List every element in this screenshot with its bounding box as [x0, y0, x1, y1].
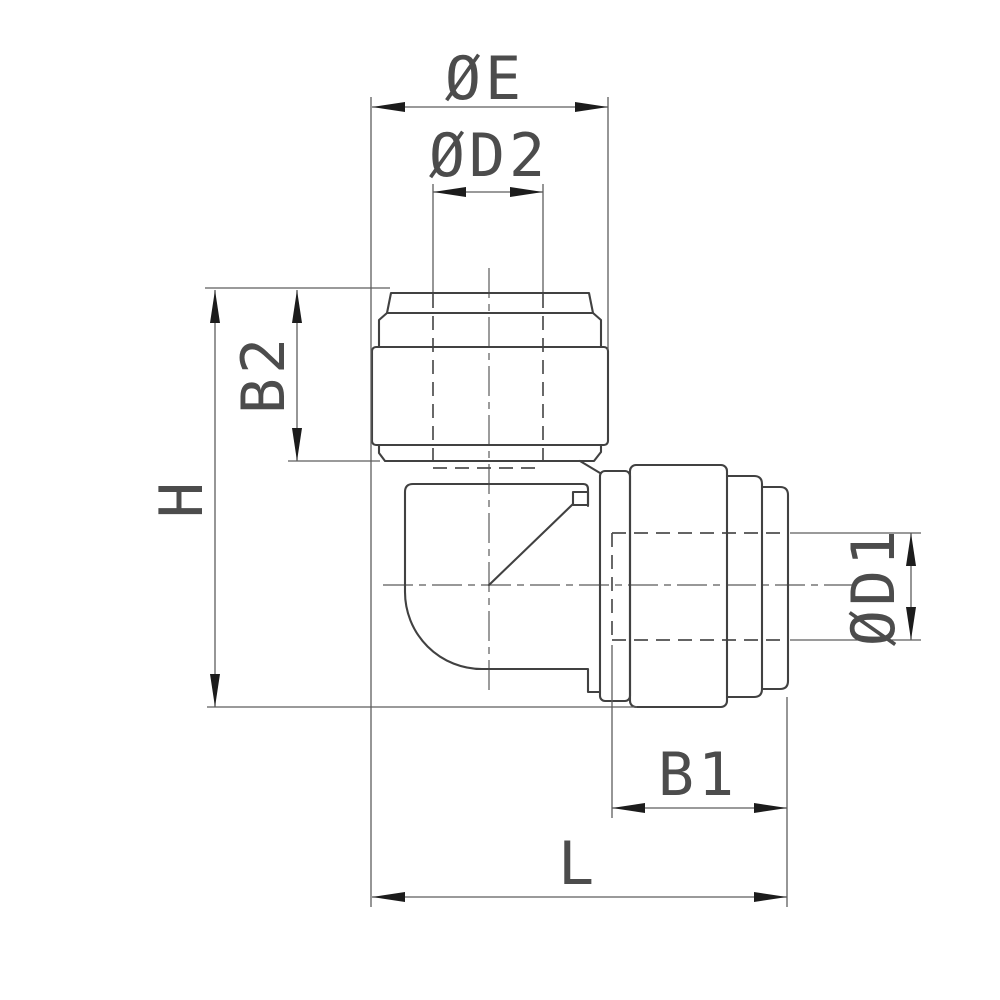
arrowhead-down [210, 674, 220, 707]
body-diagonal-line [489, 504, 573, 585]
dimension-h: H [147, 290, 220, 707]
dim-label-l: L [558, 829, 598, 899]
arrowhead-right [754, 803, 787, 813]
dim-label-b1: B1 [658, 740, 738, 810]
body-corner-chamfer [580, 461, 600, 473]
hidden-bore-lines [433, 294, 788, 640]
vertical-collet-ring [372, 347, 608, 445]
dimension-l: L [372, 829, 787, 902]
dim-label-od1: ØD1 [839, 526, 909, 646]
horizontal-collet-ring [630, 465, 727, 707]
elbow-body [405, 484, 600, 692]
arrowhead-left [612, 803, 645, 813]
dim-label-oe: ØE [445, 44, 525, 114]
horizontal-collet-ring2 [727, 476, 762, 697]
horizontal-collet-cap [762, 487, 788, 689]
vertical-collet-cap [387, 293, 593, 313]
vertical-collet-washer [379, 445, 601, 461]
dimension-od1: ØD1 [839, 526, 916, 646]
extension-lines [205, 97, 921, 907]
arrowhead-right [575, 102, 608, 112]
dimension-od2: ØD2 [429, 121, 549, 197]
part-outline [372, 293, 788, 707]
vertical-collet-band [379, 313, 601, 347]
horizontal-collet-washer [600, 471, 630, 701]
dim-label-od2: ØD2 [429, 121, 549, 191]
arrowhead-down [292, 428, 302, 461]
drawing-canvas: ØE ØD2 B2 H ØD1 [0, 0, 1000, 1000]
arrowhead-left [372, 102, 405, 112]
dimension-oe: ØE [372, 44, 608, 114]
arrowhead-up [210, 290, 220, 323]
dim-label-b2: B2 [229, 334, 299, 414]
arrowhead-right [754, 892, 787, 902]
arrowhead-up [292, 290, 302, 323]
arrowhead-left [372, 892, 405, 902]
dim-label-h: H [147, 478, 217, 518]
center-lines [383, 268, 858, 696]
elbow-fitting-drawing: ØE ØD2 B2 H ØD1 [0, 0, 1000, 1000]
corner-box-detail [573, 492, 588, 505]
dimension-b1: B1 [612, 740, 787, 813]
dimension-b2: B2 [229, 290, 302, 461]
